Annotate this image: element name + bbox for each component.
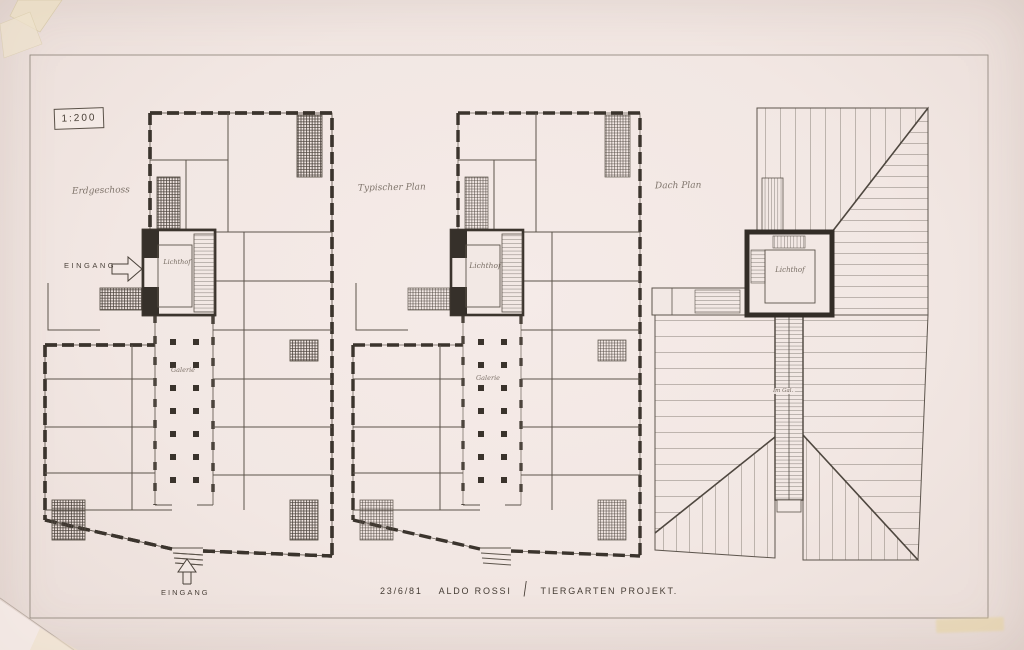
entrance-arrow-up-icon bbox=[178, 559, 196, 584]
plan-dach bbox=[652, 108, 928, 560]
plan-erdgeschoss bbox=[45, 113, 332, 584]
roof-tower-court bbox=[747, 232, 832, 315]
drawing-canvas bbox=[0, 0, 1024, 650]
plan-typischer bbox=[353, 113, 640, 565]
tape-top-left bbox=[0, 0, 62, 58]
fold-bottom-left bbox=[0, 598, 78, 650]
roof-bridge bbox=[652, 288, 747, 315]
entrance-arrow-right-icon bbox=[112, 257, 142, 281]
roof-stair-shaft bbox=[775, 315, 803, 512]
drawing-sheet: 1:200 Erdgeschoss Typischer Plan Dach Pl… bbox=[0, 0, 1024, 650]
